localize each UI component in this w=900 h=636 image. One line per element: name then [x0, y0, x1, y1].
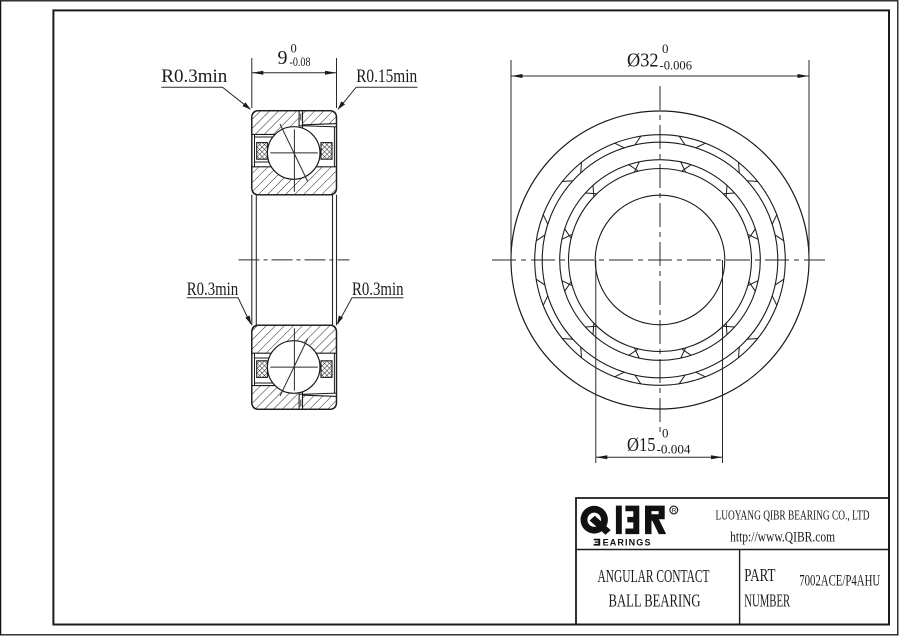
- svg-text:R: R: [672, 508, 677, 515]
- svg-text:Ø15: Ø15: [627, 434, 656, 456]
- svg-text:0: 0: [662, 41, 669, 56]
- svg-text:7002ACE/P4AHU: 7002ACE/P4AHU: [799, 573, 880, 590]
- svg-text:R0.3min: R0.3min: [352, 279, 404, 300]
- svg-text:ANGULAR CONTACT: ANGULAR CONTACT: [598, 566, 710, 586]
- svg-text:NUMBER: NUMBER: [744, 591, 790, 611]
- svg-text:EARINGS: EARINGS: [603, 538, 652, 549]
- svg-text:LUOYANG QIBR BEARING CO., LTD: LUOYANG QIBR BEARING CO., LTD: [716, 507, 870, 522]
- svg-text:9: 9: [278, 47, 288, 69]
- svg-text:0: 0: [662, 426, 669, 441]
- svg-text:-0.004: -0.004: [657, 442, 691, 457]
- svg-text:R0.15min: R0.15min: [356, 66, 417, 87]
- svg-text:http://www.QIBR.com: http://www.QIBR.com: [730, 529, 836, 545]
- svg-text:BALL BEARING: BALL BEARING: [609, 591, 701, 611]
- svg-text:Ø32: Ø32: [627, 50, 659, 72]
- svg-text:R0.3min: R0.3min: [161, 66, 227, 87]
- svg-text:-0.006: -0.006: [660, 58, 693, 73]
- svg-text:PART: PART: [744, 565, 775, 585]
- svg-text:R0.3min: R0.3min: [187, 279, 239, 300]
- svg-text:0: 0: [291, 42, 297, 56]
- svg-text:-0.08: -0.08: [290, 55, 311, 69]
